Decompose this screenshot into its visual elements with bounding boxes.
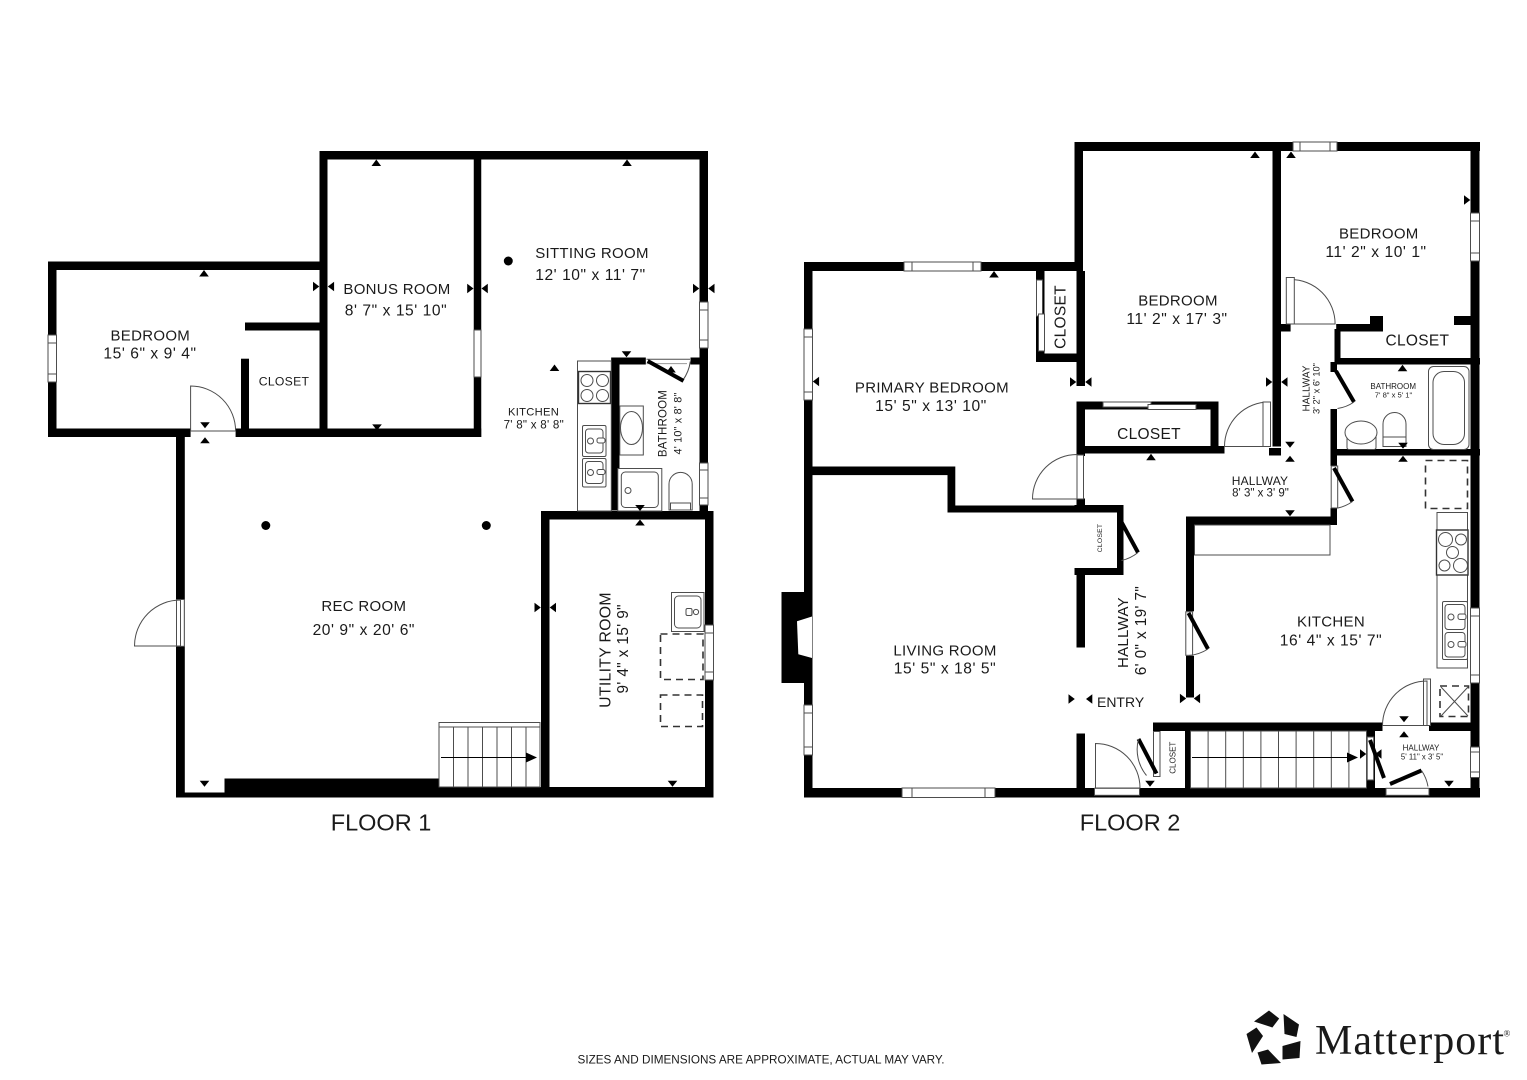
svg-text:6' 0" x 19' 7": 6' 0" x 19' 7" (1133, 586, 1150, 676)
svg-text:BEDROOM: BEDROOM (1138, 293, 1218, 310)
svg-text:SITTING ROOM: SITTING ROOM (535, 245, 649, 262)
svg-text:CLOSET: CLOSET (1385, 333, 1449, 350)
svg-text:ENTRY: ENTRY (1097, 694, 1145, 710)
svg-text:LIVING ROOM: LIVING ROOM (893, 643, 996, 660)
svg-text:UTILITY ROOM: UTILITY ROOM (598, 592, 615, 708)
svg-text:KITCHEN: KITCHEN (508, 407, 559, 419)
svg-text:5' 11" x 3' 5": 5' 11" x 3' 5" (1401, 752, 1443, 761)
svg-text:HALLWAY: HALLWAY (1232, 474, 1289, 488)
svg-text:®: ® (1504, 1029, 1511, 1039)
svg-text:BATHROOM: BATHROOM (657, 390, 669, 457)
svg-text:FLOOR 1: FLOOR 1 (331, 810, 432, 836)
svg-text:15' 5" x 18' 5": 15' 5" x 18' 5" (894, 661, 996, 678)
svg-text:3' 2" x 6' 10": 3' 2" x 6' 10" (1312, 363, 1322, 414)
svg-text:CLOSET: CLOSET (1097, 524, 1104, 552)
svg-text:9' 4" x 15' 9": 9' 4" x 15' 9" (615, 604, 632, 694)
svg-text:KITCHEN: KITCHEN (1297, 614, 1365, 631)
svg-text:8' 3" x 3' 9": 8' 3" x 3' 9" (1232, 487, 1289, 499)
svg-text:8' 7" x 15' 10": 8' 7" x 15' 10" (345, 303, 447, 320)
svg-text:11' 2" x 17' 3": 11' 2" x 17' 3" (1126, 311, 1227, 328)
svg-text:BEDROOM: BEDROOM (110, 328, 190, 345)
svg-text:Matterport: Matterport (1315, 1018, 1504, 1064)
svg-text:7' 8" x 8' 8": 7' 8" x 8' 8" (504, 419, 564, 432)
svg-text:FLOOR 2: FLOOR 2 (1080, 810, 1181, 836)
svg-text:PRIMARY BEDROOM: PRIMARY BEDROOM (855, 380, 1009, 397)
svg-text:SIZES AND DIMENSIONS ARE APPRO: SIZES AND DIMENSIONS ARE APPROXIMATE, AC… (578, 1053, 945, 1067)
svg-text:CLOSET: CLOSET (1053, 285, 1070, 349)
svg-text:BEDROOM: BEDROOM (1339, 226, 1419, 243)
svg-text:16' 4" x 15' 7": 16' 4" x 15' 7" (1280, 633, 1382, 650)
svg-text:CLOSET: CLOSET (1168, 742, 1177, 774)
svg-text:12' 10" x 11' 7": 12' 10" x 11' 7" (535, 267, 646, 284)
svg-text:HALLWAY: HALLWAY (1115, 597, 1132, 668)
svg-text:CLOSET: CLOSET (259, 375, 310, 389)
svg-text:BONUS ROOM: BONUS ROOM (343, 281, 450, 298)
svg-text:REC ROOM: REC ROOM (321, 598, 406, 615)
svg-text:11' 2" x 10' 1": 11' 2" x 10' 1" (1325, 244, 1426, 261)
svg-text:CLOSET: CLOSET (1117, 426, 1181, 443)
svg-text:20' 9" x 20' 6": 20' 9" x 20' 6" (313, 622, 415, 639)
svg-text:HALLWAY: HALLWAY (1403, 744, 1440, 753)
svg-text:15' 5" x 13' 10": 15' 5" x 13' 10" (875, 398, 987, 415)
svg-text:15' 6" x 9' 4": 15' 6" x 9' 4" (103, 346, 196, 363)
svg-text:4' 10" x 8' 8": 4' 10" x 8' 8" (673, 392, 685, 454)
svg-text:7' 8" x 5' 1": 7' 8" x 5' 1" (1375, 390, 1413, 399)
